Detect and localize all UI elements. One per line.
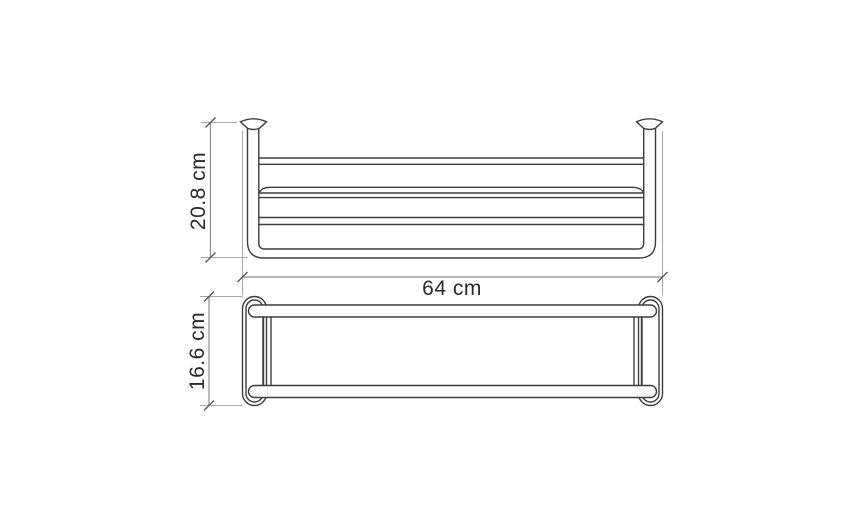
height-dimension-label: 20.8 cm	[187, 152, 210, 230]
depth-dimension: 16.6 cm	[186, 292, 243, 411]
front-rail-tube	[249, 386, 657, 398]
wall-mount-cap-left-icon	[241, 119, 267, 130]
towel-rack-diagram: 20.8 cm 64 cm	[0, 0, 856, 528]
technical-drawing-canvas: 20.8 cm 64 cm	[0, 0, 856, 528]
wall-mount-cap-right-icon	[637, 119, 663, 130]
shelf-edge-rod	[259, 187, 644, 193]
width-dimension: 64 cm	[238, 131, 668, 300]
front-view	[241, 119, 663, 258]
height-dimension: 20.8 cm	[187, 118, 248, 263]
top-view	[243, 297, 663, 406]
back-rail-tube	[249, 305, 657, 317]
depth-dimension-label: 16.6 cm	[186, 312, 209, 390]
frame-inner-line	[259, 128, 644, 249]
width-dimension-label: 64 cm	[422, 277, 482, 300]
